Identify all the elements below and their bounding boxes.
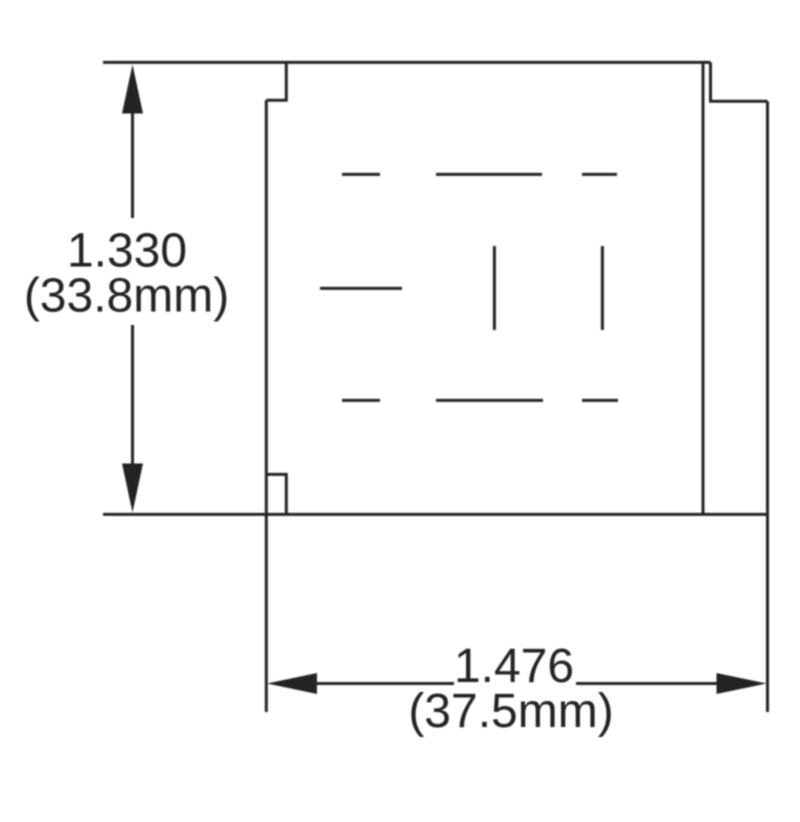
svg-text:(33.8mm): (33.8mm) [24, 270, 229, 323]
svg-text:(37.5mm): (37.5mm) [408, 685, 613, 738]
